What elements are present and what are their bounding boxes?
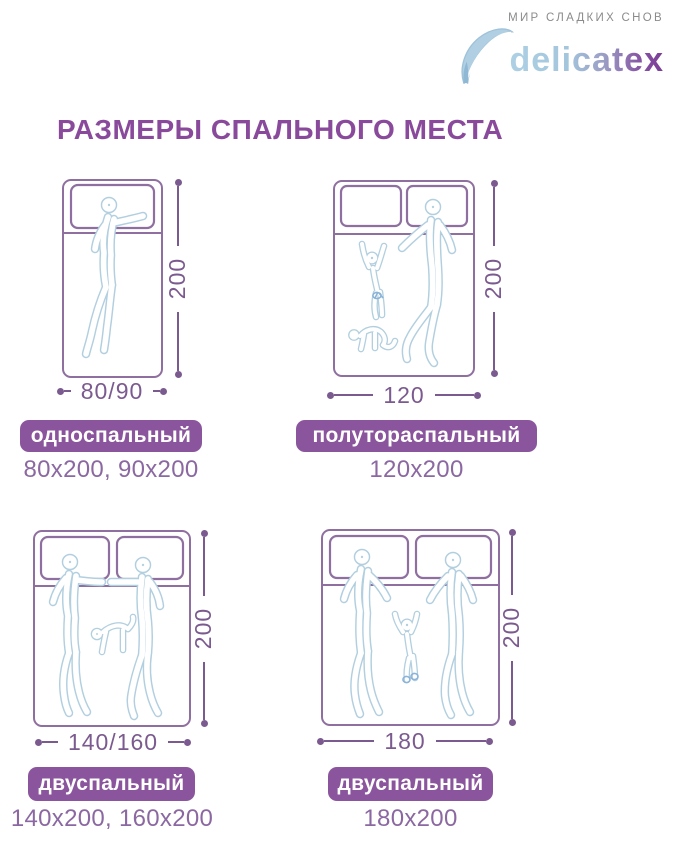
height-dimension-double-180: 200 [504,529,520,726]
height-dimension-label: 200 [499,607,526,648]
width-dimension-double-180: 180 [317,730,493,752]
bed-sizes-text-one-and-half: 120x200 [296,456,537,484]
bed-diagram-double-140 [33,530,191,727]
height-dimension-single: 200 [170,179,186,378]
width-dimension-one-and-half: 120 [327,384,481,406]
brand-tagline: МИР СЛАДКИХ СНОВ [508,12,664,24]
bed-sizes-infographic: МИР СЛАДКИХ СНОВ delicatex РАЗМЕРЫ СПАЛЬ… [0,0,678,854]
width-dimension-double-140: 140/160 [35,731,191,753]
height-dimension-label: 200 [191,608,218,649]
width-dimension-label: 120 [373,382,434,409]
height-dimension-double-140: 200 [196,530,212,727]
height-dimension-label: 200 [165,258,192,299]
height-dimension-label: 200 [481,258,508,299]
bed-type-badge-double-180: двуспальный [328,767,493,801]
feather-icon [457,25,517,87]
bed-sizes-text-double-180: 180x200 [318,805,503,833]
bed-sizes-text-double-140: 140x200, 160x200 [0,805,224,833]
brand-name: delicatex [509,43,664,79]
brand-row: delicatex [457,25,664,79]
bed-diagram-single [62,179,163,378]
bed-sizes-text-single: 80x200, 90x200 [6,456,216,484]
bed-diagram-one-and-half [333,180,475,377]
height-dimension-one-and-half: 200 [486,180,502,377]
bed-type-badge-single: односпальный [20,420,202,452]
brand-logo: МИР СЛАДКИХ СНОВ delicatex [457,12,664,79]
width-dimension-single: 80/90 [57,380,167,402]
width-dimension-label: 140/160 [58,729,168,756]
bed-diagram-double-180 [321,529,500,726]
width-dimension-label: 80/90 [71,378,154,405]
width-dimension-label: 180 [374,728,435,755]
bed-type-badge-one-and-half: полутораспальный [296,420,537,452]
bed-type-badge-double-140: двуспальный [28,767,195,801]
page-title: РАЗМЕРЫ СПАЛЬНОГО МЕСТА [57,114,503,146]
